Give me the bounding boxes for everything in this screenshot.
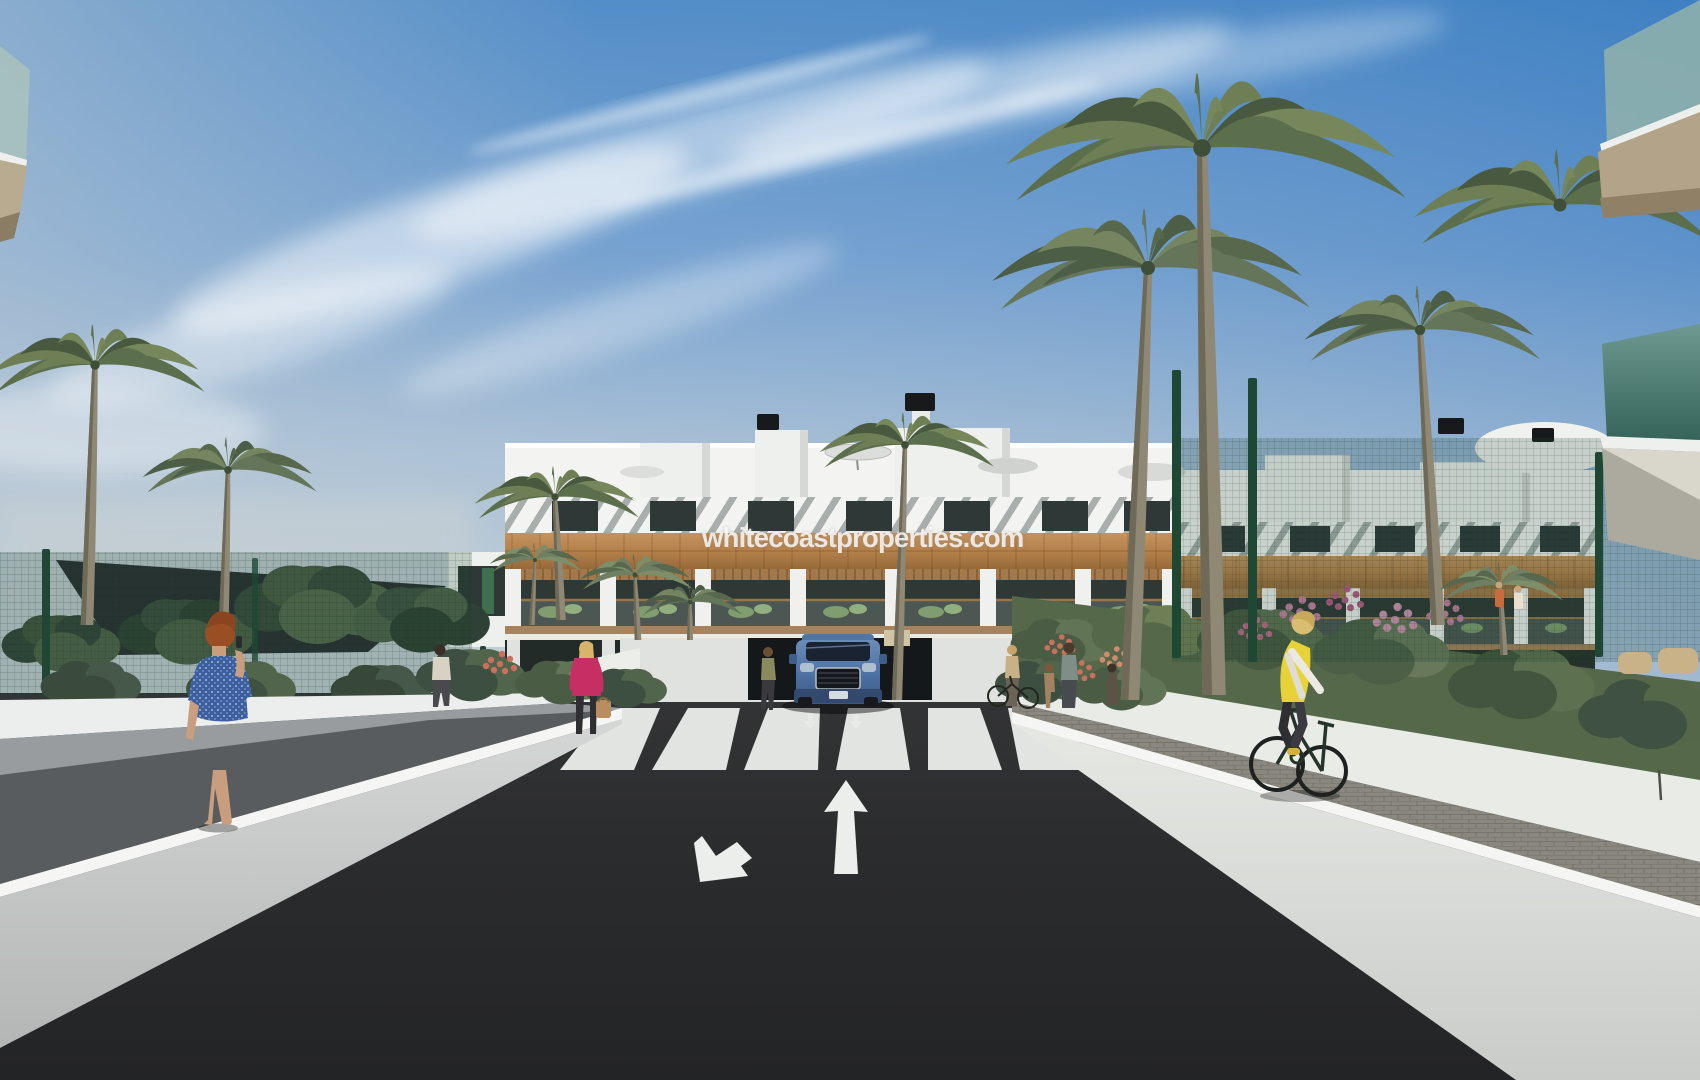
flower-cluster — [483, 663, 489, 669]
flower-cluster — [1104, 652, 1110, 658]
flower-cluster — [488, 657, 494, 663]
flower-cluster — [1049, 640, 1055, 646]
balcony-glass-rail — [901, 600, 980, 628]
balcony-pillar — [980, 569, 996, 632]
balcony-pillar — [790, 569, 806, 632]
flower-cluster — [1057, 643, 1063, 649]
flower-cluster — [1112, 655, 1118, 661]
flower-cluster — [502, 668, 508, 674]
flower-cluster — [1086, 665, 1092, 671]
flower-cluster — [1077, 669, 1083, 675]
watermark: whitecoastproperties.com — [702, 522, 1002, 554]
flower-cluster — [511, 665, 517, 671]
crosswalk-stripe — [836, 708, 910, 770]
flower-cluster — [1079, 660, 1085, 666]
flower-cluster — [1059, 634, 1065, 640]
flower-cluster — [1100, 657, 1106, 663]
flower-cluster — [1117, 661, 1123, 667]
flower-cluster — [499, 651, 505, 657]
flower-cluster — [507, 656, 513, 662]
flower-cluster — [491, 667, 497, 673]
flower-cluster — [1045, 645, 1051, 651]
flower-cluster — [1082, 675, 1088, 681]
architectural-render: whitecoastproperties.com — [0, 0, 1700, 1080]
flower-cluster — [1090, 673, 1096, 679]
flower-cluster — [1114, 646, 1120, 652]
top-floor-window — [650, 501, 696, 531]
top-floor-window — [1042, 501, 1088, 531]
balcony-pillar — [505, 569, 521, 632]
flower-cluster — [497, 661, 503, 667]
suv-car — [782, 634, 894, 714]
balcony-glass-rail — [806, 600, 885, 628]
flower-cluster — [1052, 649, 1058, 655]
